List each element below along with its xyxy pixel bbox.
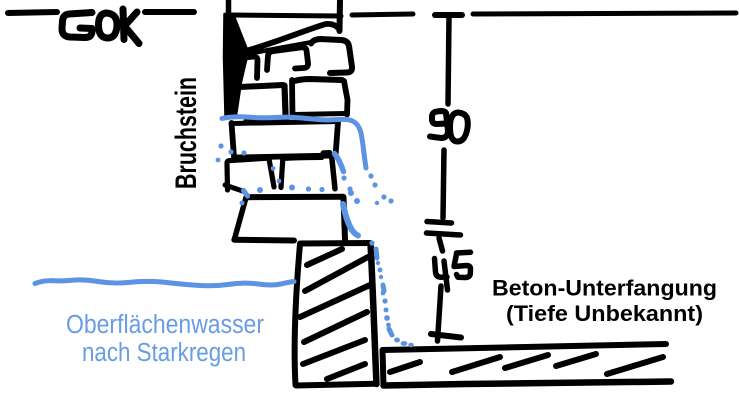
svg-text:(Tiefe Unbekannt): (Tiefe Unbekannt) [506, 301, 703, 326]
svg-text:Oberflächenwasser: Oberflächenwasser [66, 311, 264, 339]
svg-text:nach Starkregen: nach Starkregen [82, 339, 246, 367]
svg-text:Beton-Unterfangung: Beton-Unterfangung [492, 276, 717, 301]
svg-text:Bruchstein: Bruchstein [170, 77, 203, 189]
